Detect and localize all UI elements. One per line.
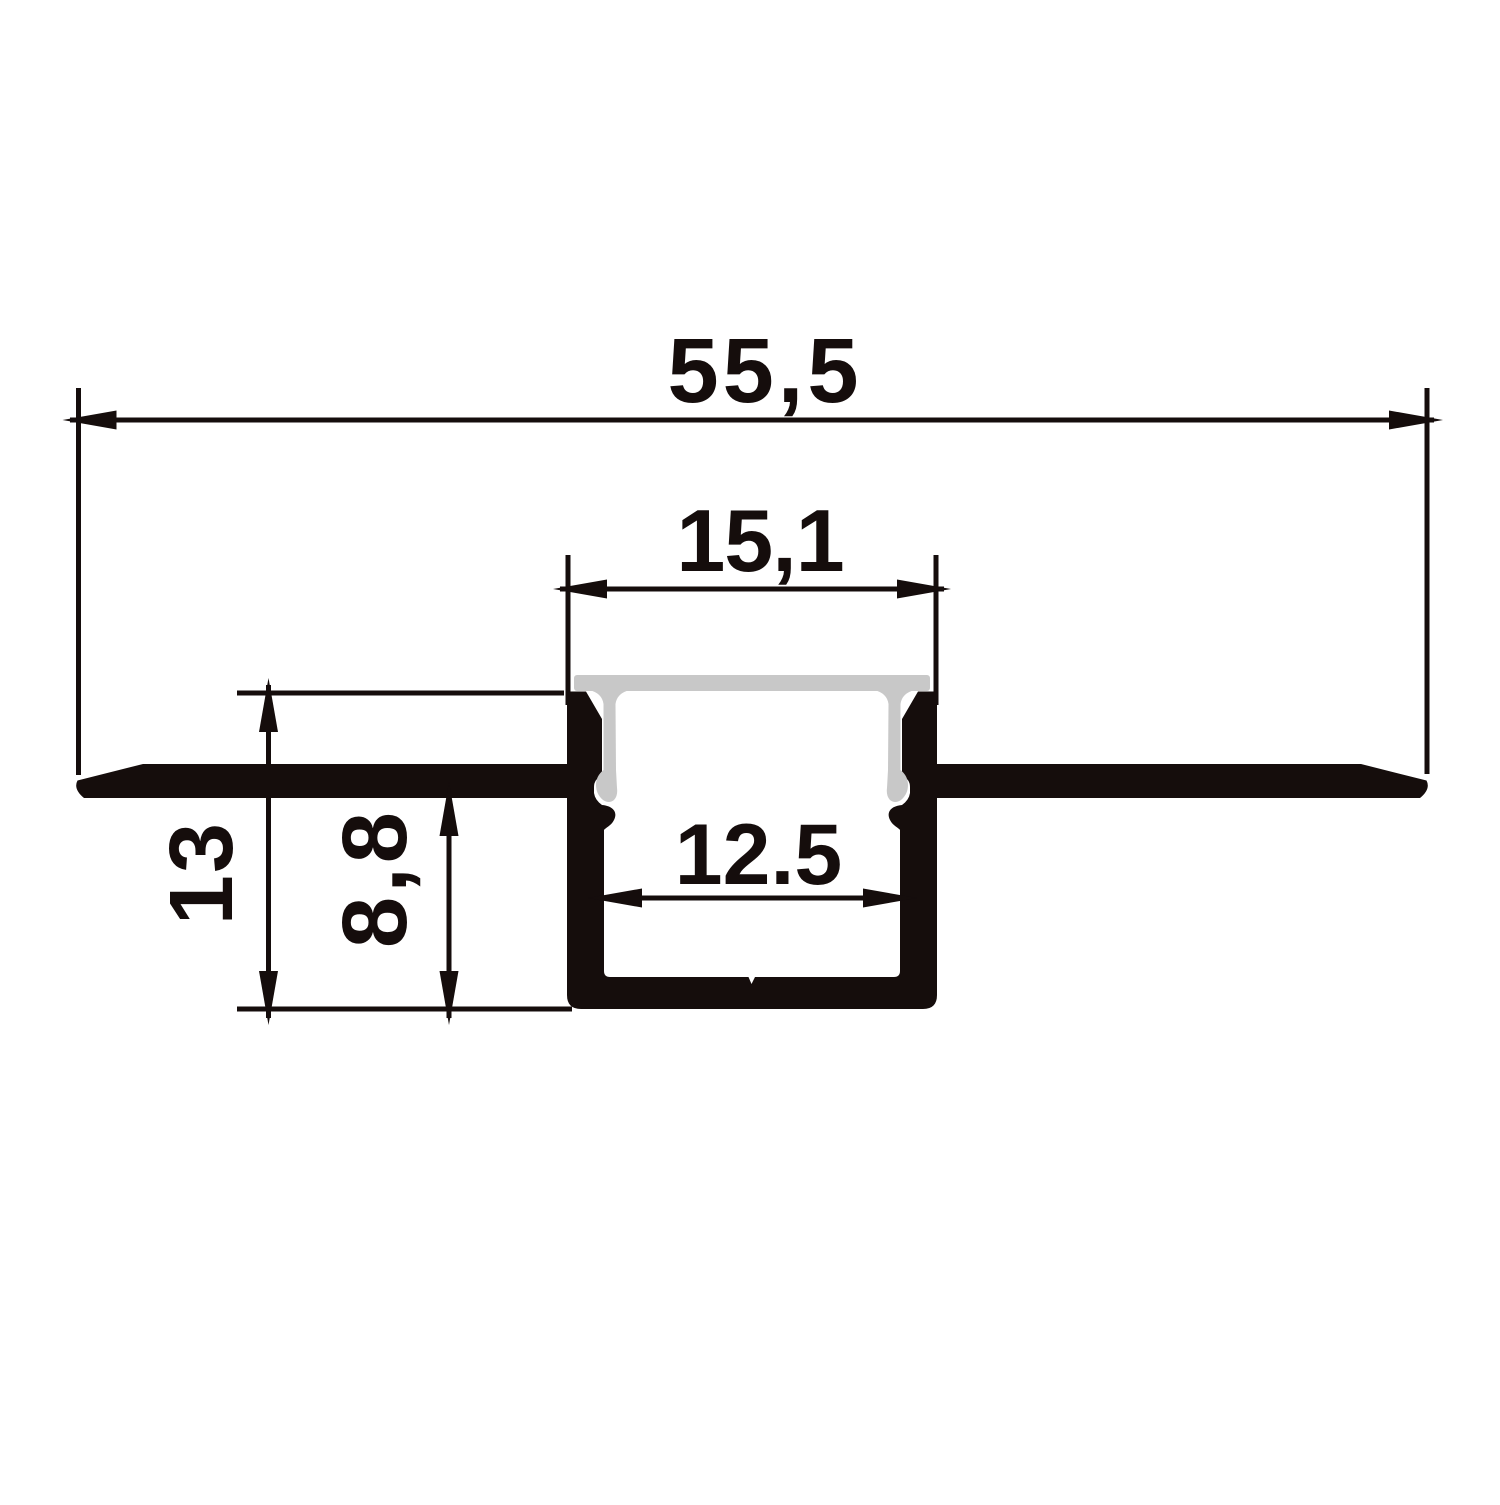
svg-text:15,1: 15,1 bbox=[676, 491, 843, 590]
svg-text:8,8: 8,8 bbox=[324, 808, 426, 948]
svg-text:12.5: 12.5 bbox=[675, 807, 842, 903]
svg-text:13: 13 bbox=[152, 821, 252, 925]
svg-text:55,5: 55,5 bbox=[667, 320, 862, 422]
